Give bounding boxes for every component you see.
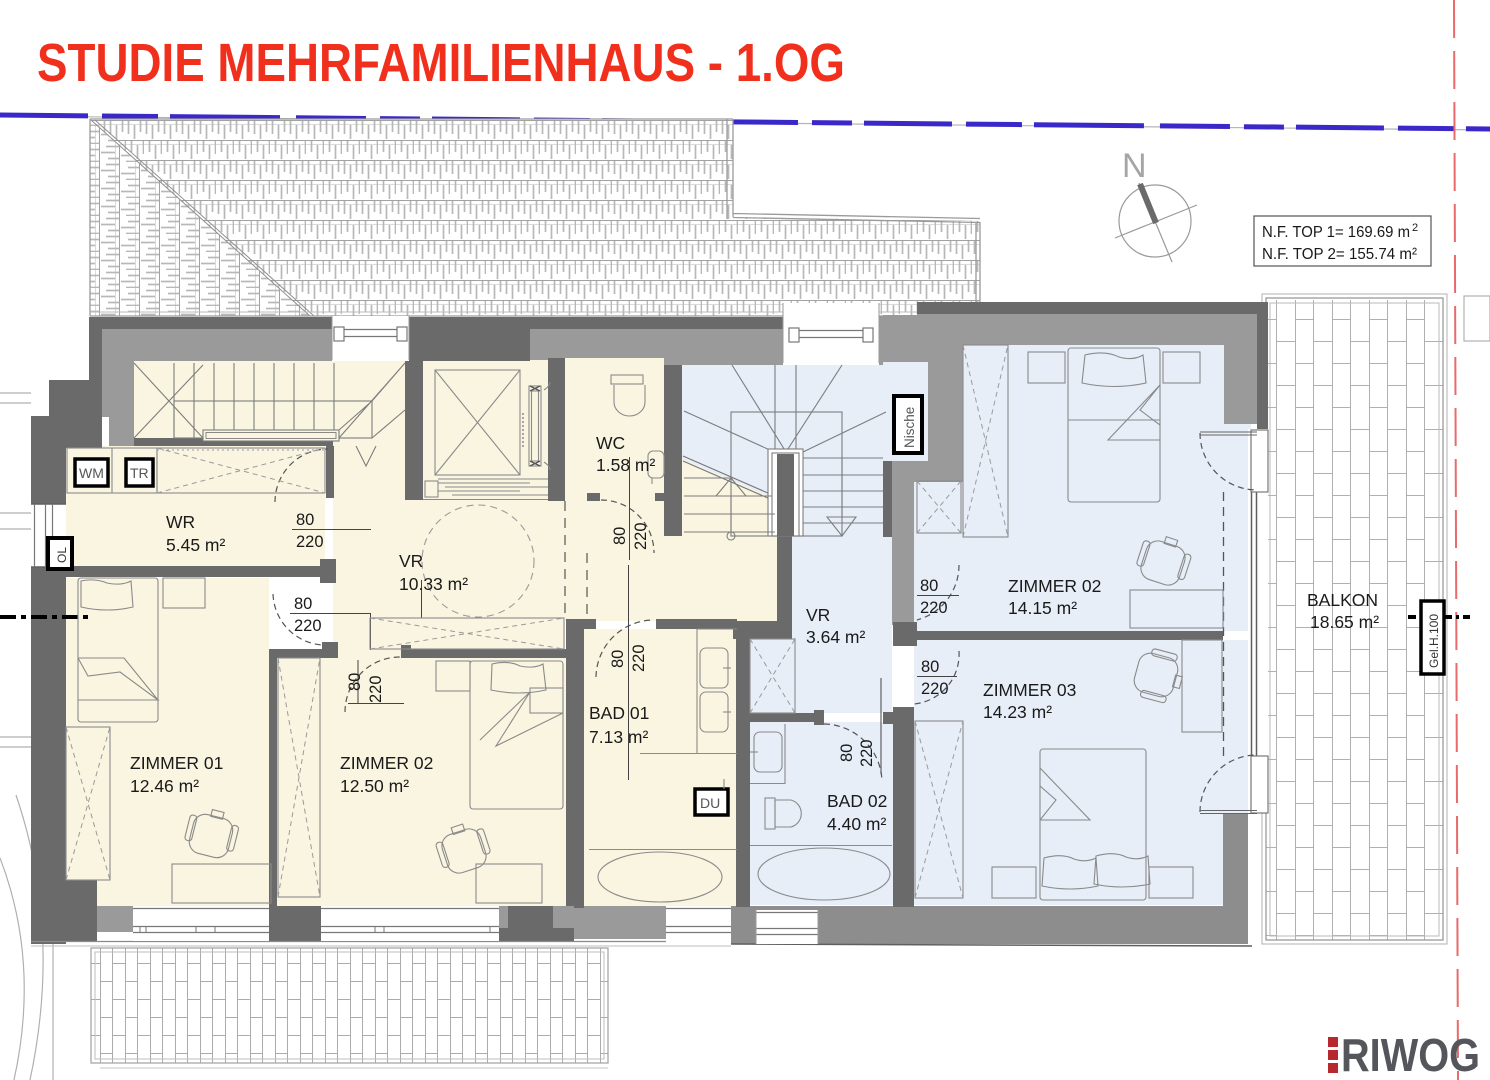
svg-text:BAD 01: BAD 01 — [589, 703, 649, 723]
svg-text:220: 220 — [630, 644, 648, 672]
svg-text:BAD 02: BAD 02 — [827, 791, 887, 811]
svg-text:ZIMMER 02: ZIMMER 02 — [340, 753, 433, 773]
svg-text:N: N — [1122, 147, 1147, 185]
svg-text:220: 220 — [367, 675, 385, 703]
svg-text:TR: TR — [130, 465, 149, 481]
svg-text:WC: WC — [596, 433, 625, 453]
svg-text:DU: DU — [700, 795, 720, 811]
svg-text:ZIMMER 02: ZIMMER 02 — [1008, 576, 1101, 596]
svg-text:220: 220 — [858, 739, 876, 767]
svg-text:80: 80 — [294, 595, 312, 613]
svg-text:10.33 m²: 10.33 m² — [399, 574, 468, 594]
svg-text:12.46 m²: 12.46 m² — [130, 776, 199, 796]
svg-text:80: 80 — [611, 527, 629, 545]
svg-text:N.F. TOP 1= 169.69 m: N.F. TOP 1= 169.69 m — [1262, 224, 1410, 241]
svg-text:220: 220 — [921, 680, 949, 698]
svg-text:80: 80 — [609, 650, 627, 668]
svg-text:12.50 m²: 12.50 m² — [340, 776, 409, 796]
svg-text:ZIMMER 01: ZIMMER 01 — [130, 753, 223, 773]
svg-text:1.58 m²: 1.58 m² — [596, 455, 655, 475]
svg-text:4.40 m²: 4.40 m² — [827, 814, 886, 834]
svg-text:3.64 m²: 3.64 m² — [806, 627, 865, 647]
svg-text:220: 220 — [632, 522, 650, 550]
svg-text:OL: OL — [55, 547, 69, 563]
svg-text:VR: VR — [806, 605, 830, 625]
svg-text:5.45 m²: 5.45 m² — [166, 535, 225, 555]
svg-text:220: 220 — [296, 533, 324, 551]
svg-text:BALKON: BALKON — [1307, 590, 1378, 610]
svg-text:RIWOG: RIWOG — [1341, 1029, 1480, 1080]
svg-text:WM: WM — [79, 465, 104, 481]
svg-text:220: 220 — [920, 599, 948, 617]
svg-text:N.F. TOP 2= 155.74 m²: N.F. TOP 2= 155.74 m² — [1262, 246, 1418, 263]
svg-text:VR: VR — [399, 551, 423, 571]
svg-text:14.23 m²: 14.23 m² — [983, 702, 1052, 722]
svg-text:WR: WR — [166, 512, 195, 532]
svg-text:80: 80 — [921, 658, 939, 676]
svg-text:14.15 m²: 14.15 m² — [1008, 598, 1077, 618]
svg-text:ZIMMER 03: ZIMMER 03 — [983, 680, 1076, 700]
svg-text:STUDIE MEHRFAMILIENHAUS - 1.OG: STUDIE MEHRFAMILIENHAUS - 1.OG — [37, 33, 845, 93]
svg-text:220: 220 — [294, 617, 322, 635]
svg-text:80: 80 — [838, 744, 856, 762]
svg-text:Nische: Nische — [902, 407, 917, 448]
svg-text:7.13 m²: 7.13 m² — [589, 727, 648, 747]
svg-text:80: 80 — [920, 577, 938, 595]
svg-text:80: 80 — [346, 673, 364, 691]
svg-text:2: 2 — [1412, 222, 1418, 234]
svg-text:80: 80 — [296, 511, 314, 529]
svg-text:18.65 m²: 18.65 m² — [1310, 612, 1379, 632]
svg-text:Gel.H.100: Gel.H.100 — [1427, 614, 1441, 668]
